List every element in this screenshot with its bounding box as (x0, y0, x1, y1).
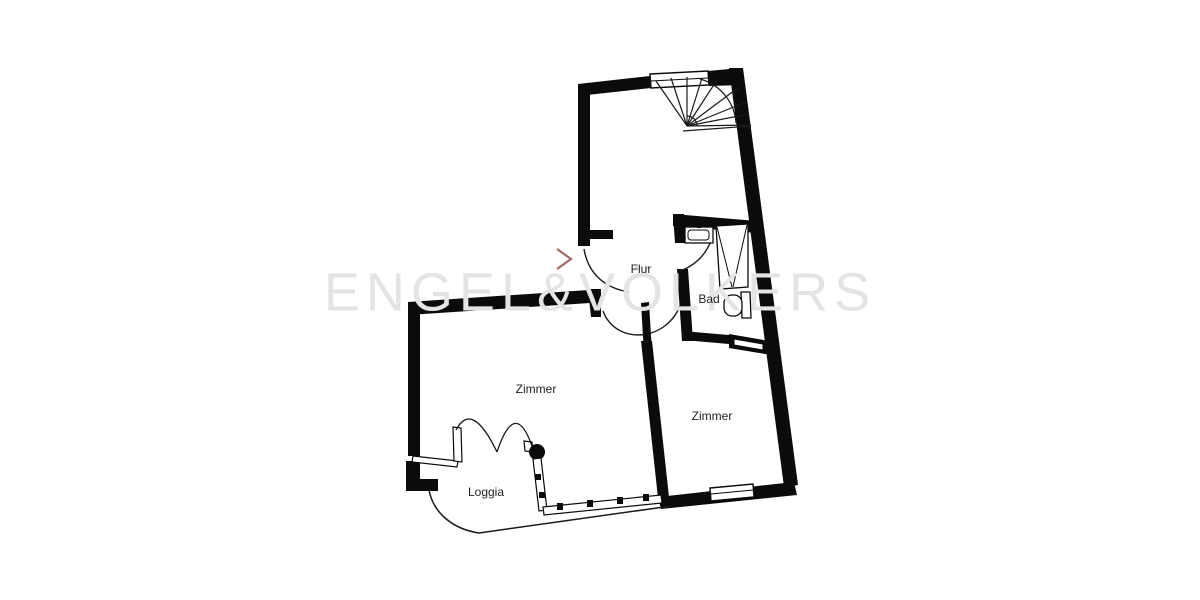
room-label-bad: Bad (698, 292, 719, 306)
wall (673, 214, 686, 243)
room-label-flur: Flur (631, 262, 652, 276)
floorplan-page: { "title": "Apartment floor plan", "wate… (0, 0, 1200, 600)
wall (408, 302, 420, 456)
wall (408, 290, 590, 315)
french-double-door-icon (453, 419, 533, 462)
wall (588, 289, 601, 317)
entrance-door-icon (584, 249, 629, 292)
wall (682, 331, 729, 344)
wall (406, 479, 438, 491)
wall (578, 84, 590, 246)
entrance-marker-icon (557, 249, 571, 269)
floor-plan-drawing (0, 0, 1200, 600)
railing-post-round (529, 444, 545, 460)
loggia-railing (529, 444, 662, 515)
wall-stub (590, 230, 613, 239)
shower-icon (716, 224, 748, 289)
room-label-loggia: Loggia (468, 485, 504, 499)
bathroom-door-icon (680, 241, 711, 271)
wall (578, 76, 651, 96)
bathroom-sink-icon (685, 224, 713, 243)
floor-plan-canvas: ENGEL&VÖLKERS Flur Bad Zimmer Zimmer Log… (0, 0, 1200, 600)
room-label-zimmer-left: Zimmer (516, 382, 557, 396)
toilet-icon (724, 292, 751, 318)
wall (677, 269, 693, 341)
room-label-zimmer-right: Zimmer (692, 409, 733, 423)
